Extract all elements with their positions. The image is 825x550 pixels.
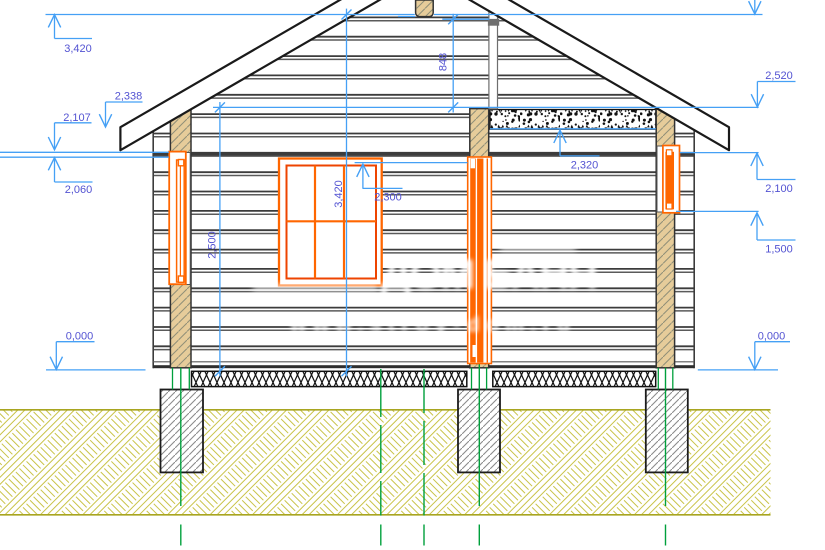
svg-text:2,100: 2,100 xyxy=(765,183,793,195)
svg-text:0,000: 0,000 xyxy=(758,331,786,343)
svg-text:3,420: 3,420 xyxy=(333,180,345,208)
svg-text:2,500: 2,500 xyxy=(207,231,219,259)
svg-text:2,300: 2,300 xyxy=(374,192,402,204)
svg-text:1,500: 1,500 xyxy=(765,244,793,256)
svg-text:0,000: 0,000 xyxy=(66,331,94,343)
svg-text:2,338: 2,338 xyxy=(115,91,143,103)
svg-text:www.stroy-dom.ru: www.stroy-dom.ru xyxy=(289,314,570,337)
svg-text:3,420: 3,420 xyxy=(64,43,92,55)
svg-text:2,520: 2,520 xyxy=(765,70,793,82)
svg-text:848: 848 xyxy=(437,53,449,71)
svg-text:ДОМ БАНЯ: ДОМ БАНЯ xyxy=(381,251,598,298)
svg-text:2,320: 2,320 xyxy=(571,160,599,172)
svg-text:2,060: 2,060 xyxy=(65,184,93,196)
svg-text:2,107: 2,107 xyxy=(63,112,91,124)
